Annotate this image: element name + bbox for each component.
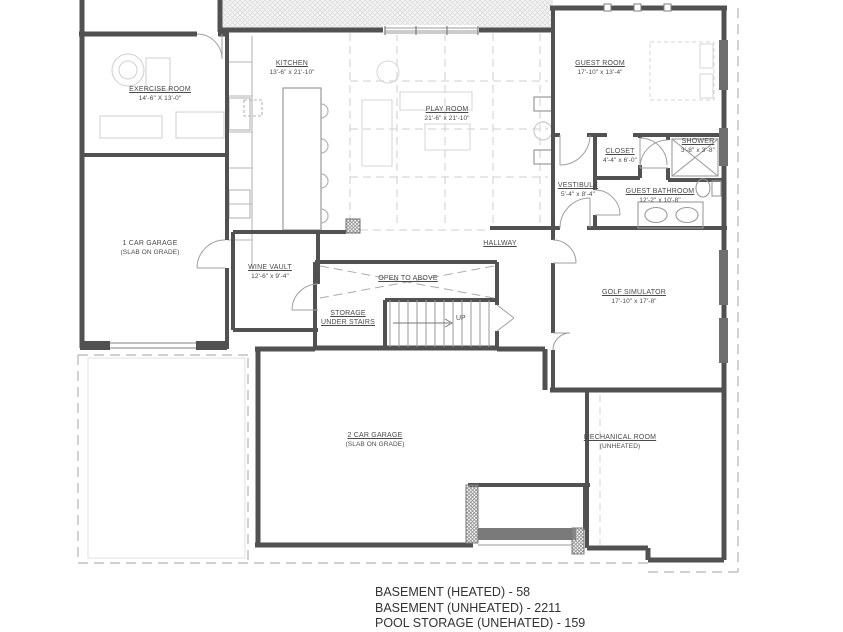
fireplace-niche bbox=[534, 97, 552, 164]
summary-line-pool-storage: POOL STORAGE (UNEHATED) - 159 bbox=[375, 616, 585, 632]
driveway-outline bbox=[88, 358, 245, 558]
hatched-column bbox=[346, 219, 360, 233]
room-label-play-room: PLAY ROOM21'-6" x 21'-10" bbox=[424, 106, 469, 123]
room-label-vestibule: VESTIBULE5'-4" x 8'-4" bbox=[558, 182, 598, 199]
room-label-shower: SHOWER3'-8" x 3'-8" bbox=[681, 138, 715, 155]
garage-door-1car bbox=[80, 341, 227, 350]
room-label-guest-bathroom: GUEST BATHROOM12'-2" x 10'-8" bbox=[626, 188, 695, 205]
room-label-upper-room: 13'-4" x 9'-4" bbox=[141, 0, 179, 2]
area-summary: BASEMENT (HEATED) - 58 BASEMENT (UNHEATE… bbox=[375, 585, 585, 632]
room-label-hallway: HALLWAY bbox=[483, 240, 517, 249]
pool-storage-bay bbox=[466, 485, 590, 554]
stairs-up-label: UP bbox=[456, 315, 466, 322]
room-label-guest-room: GUEST ROOM17'-10" x 13'-4" bbox=[575, 60, 625, 77]
room-label-golf-simulator: GOLF SIMULATOR17'-10" x 17'-8" bbox=[602, 289, 666, 306]
kitchen-island bbox=[283, 88, 328, 230]
stairs bbox=[390, 300, 489, 347]
playroom-ceiling-grid bbox=[350, 33, 548, 230]
summary-line-basement-unheated: BASEMENT (UNHEATED) - 2211 bbox=[375, 601, 585, 617]
room-label-storage-under-stairs: STORAGE UNDER STAIRS bbox=[321, 310, 375, 328]
room-label-wine-vault: WINE VAULT12'-6" x 9'-4" bbox=[248, 264, 292, 281]
room-label-closet: CLOSET4'-4" x 6'-0" bbox=[603, 148, 637, 165]
room-label-open-to-above: OPEN TO ABOVE bbox=[378, 275, 438, 284]
room-label-mechanical-room: MECHANICAL ROOM(UNHEATED) bbox=[584, 434, 656, 451]
summary-line-basement-heated: BASEMENT (HEATED) - 58 bbox=[375, 585, 585, 601]
room-label-2-car-garage: 2 CAR GARAGE(SLAB ON GRADE) bbox=[346, 432, 405, 449]
floorplan-drawing bbox=[0, 0, 843, 632]
room-label-kitchen: KITCHEN13'-6" x 21'-10" bbox=[269, 60, 314, 77]
room-label-exercise-room: EXERCISE ROOM14'-6" X 13'-0" bbox=[129, 86, 191, 103]
floor-plan-canvas: 13'-4" x 9'-4" EXERCISE ROOM14'-6" X 13'… bbox=[0, 0, 843, 632]
room-label-1-car-garage: 1 CAR GARAGE(SLAB ON GRADE) bbox=[121, 240, 180, 257]
